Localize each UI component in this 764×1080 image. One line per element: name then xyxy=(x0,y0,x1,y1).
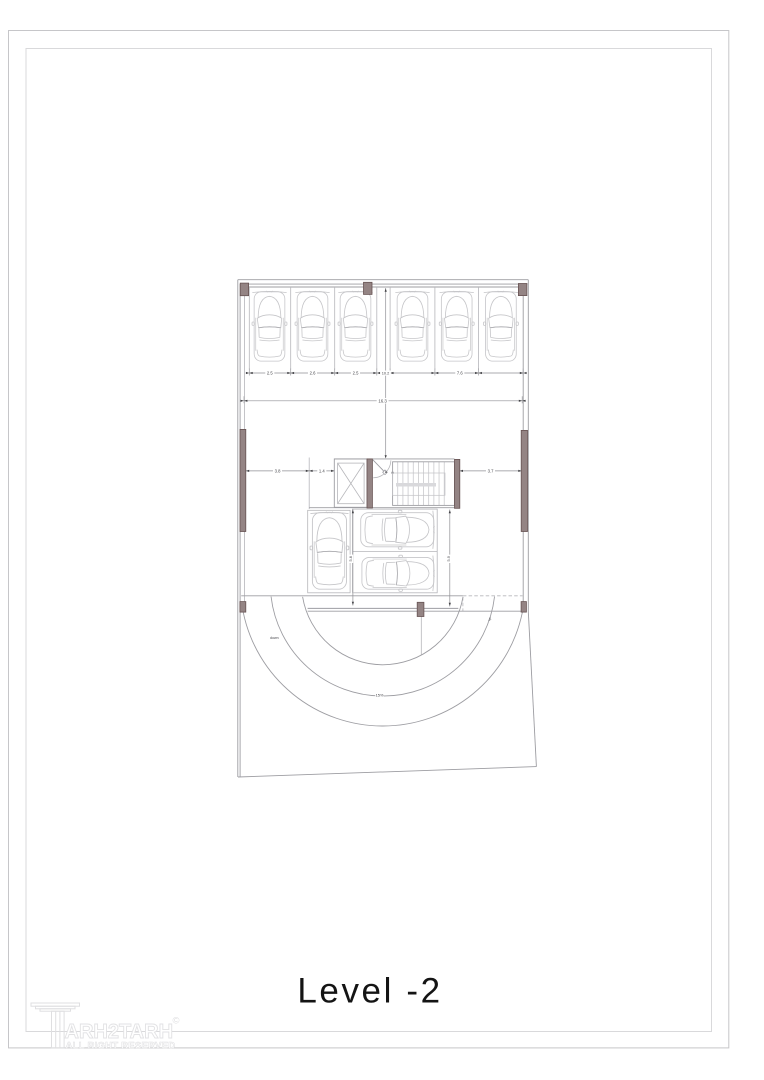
svg-text:2.5: 2.5 xyxy=(267,371,273,376)
svg-text:16.3: 16.3 xyxy=(378,398,387,403)
svg-text:down: down xyxy=(270,636,279,640)
svg-text:ALL RIGHT RESERVED: ALL RIGHT RESERVED xyxy=(66,1041,176,1052)
svg-text:3.8: 3.8 xyxy=(275,468,281,473)
svg-text:15%: 15% xyxy=(376,693,384,698)
svg-text:10.2: 10.2 xyxy=(382,371,390,376)
svg-text:1.4: 1.4 xyxy=(319,468,325,473)
svg-text:5.8: 5.8 xyxy=(349,556,353,561)
svg-text:2.6: 2.6 xyxy=(310,371,316,376)
svg-text:Level -2: Level -2 xyxy=(297,972,442,1011)
svg-text:2.5: 2.5 xyxy=(353,371,359,376)
svg-text:3.7: 3.7 xyxy=(488,468,494,473)
svg-text:©: © xyxy=(173,1016,180,1027)
svg-text:5.9: 5.9 xyxy=(447,556,451,561)
svg-text:up: up xyxy=(487,616,492,621)
svg-text:7.6: 7.6 xyxy=(457,371,463,376)
